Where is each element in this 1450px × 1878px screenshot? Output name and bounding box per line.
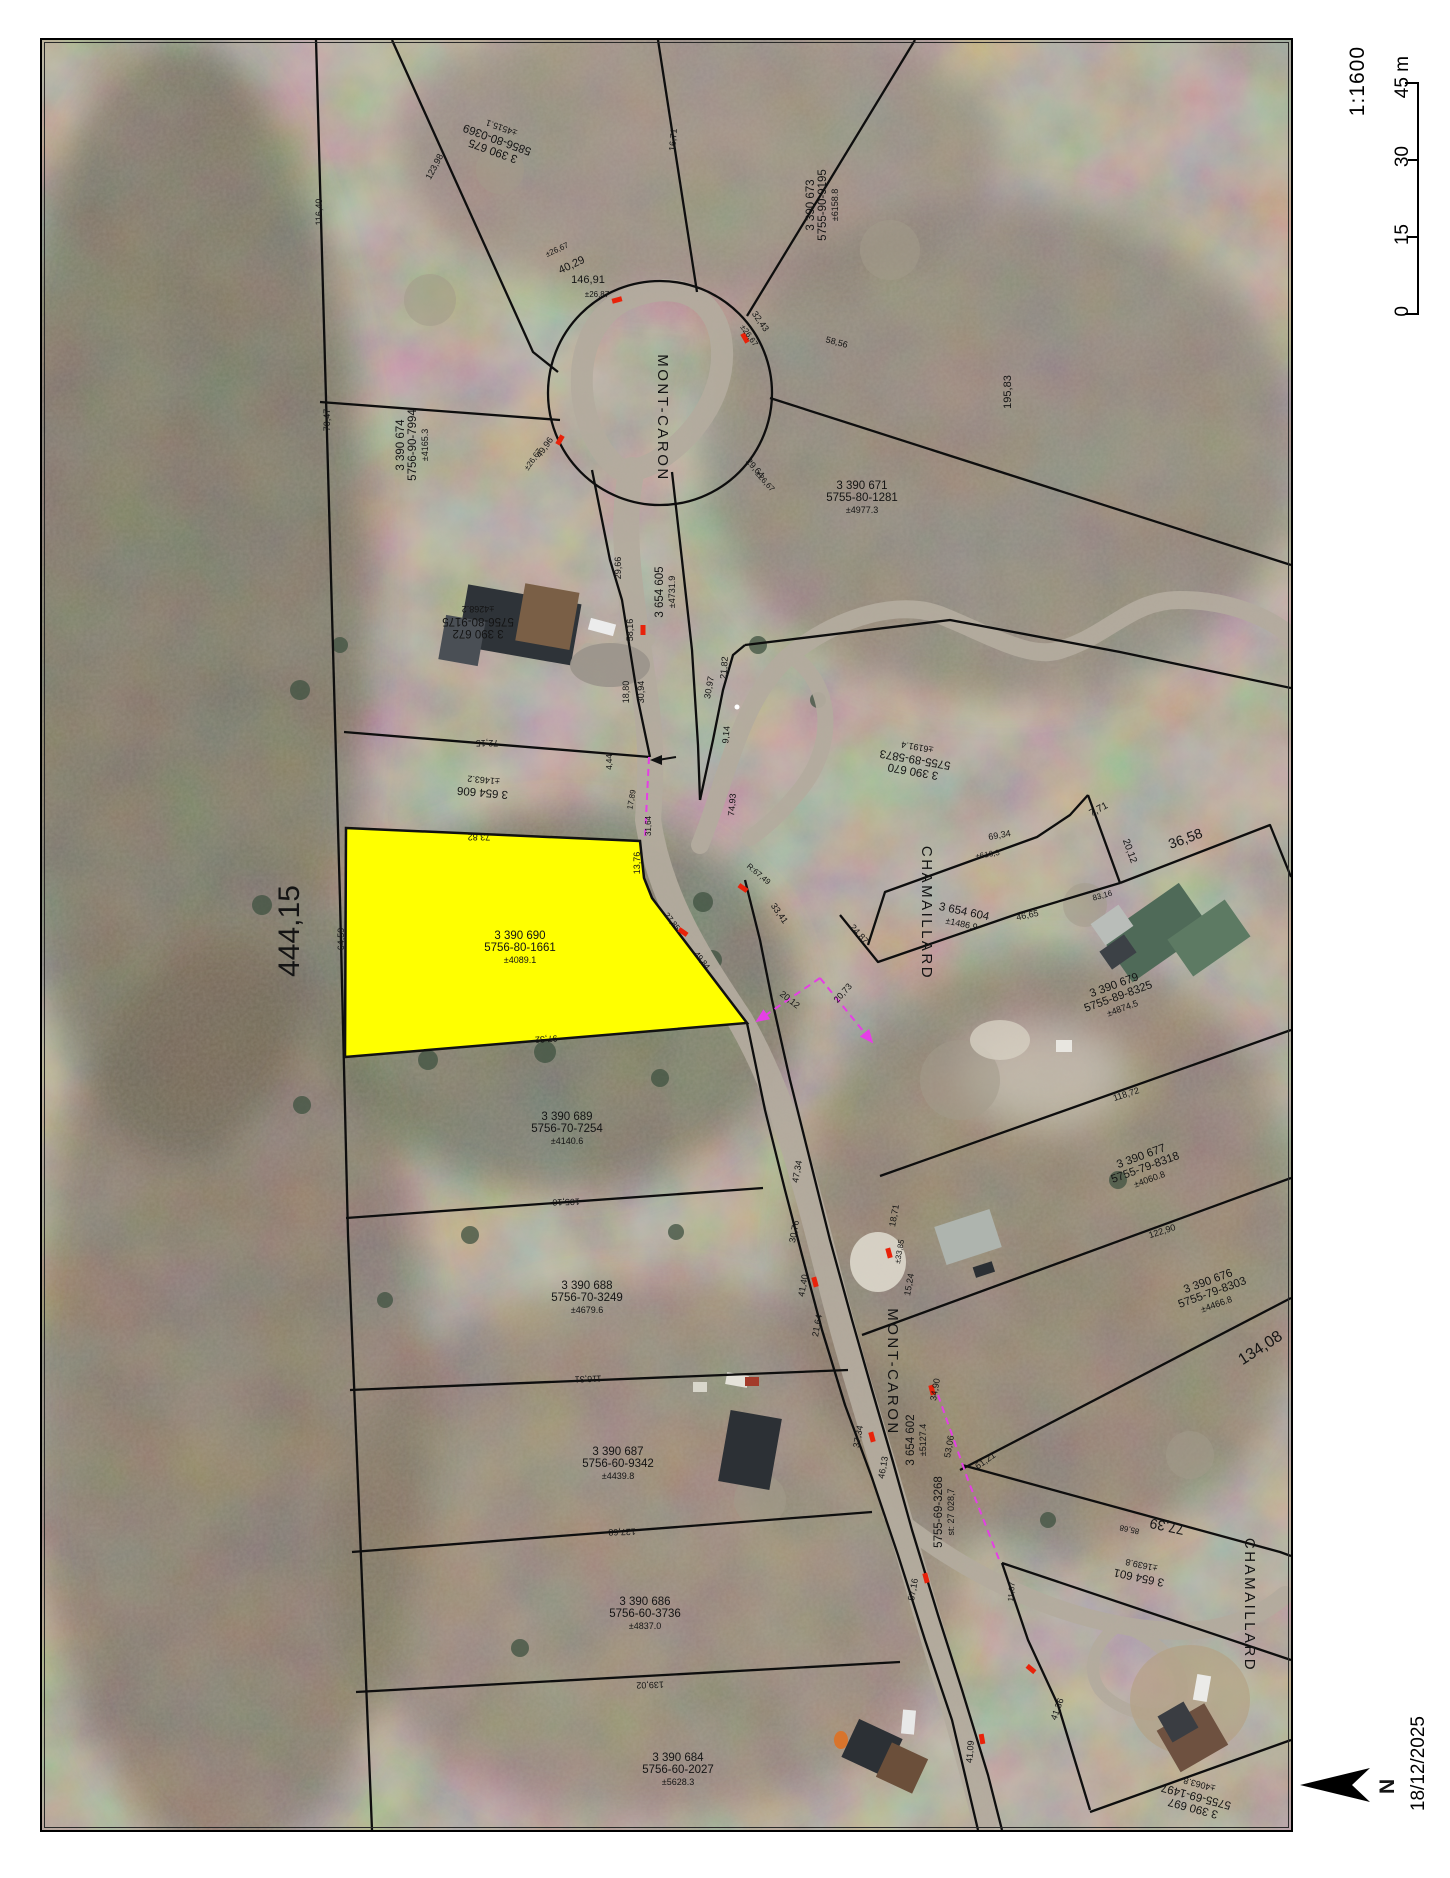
scale-tick-30: 30 <box>1392 146 1414 167</box>
parcel-label-line: ±4837.0 <box>629 1621 661 1631</box>
edge-length-label: 146,91 <box>571 274 605 286</box>
parcel-label-line: 3 390 673 <box>805 179 817 230</box>
edge-length-label: 13,76 <box>632 852 642 875</box>
north-arrow-icon <box>1300 1768 1370 1802</box>
edge-length-label: 16,71 <box>667 128 679 151</box>
north-label: N <box>1376 1779 1399 1794</box>
parcel-label-line: st: 27 028,7 <box>946 1488 956 1535</box>
scale-ruler <box>1417 82 1419 315</box>
parcel-label-line: 3 390 689 <box>541 1111 592 1123</box>
edge-length-label: 105,10 <box>552 1197 580 1208</box>
map-frame: 116,40123,9816,7170,47146,91±26,8740,29±… <box>40 38 1293 1832</box>
parcel-label-line: ±4731.9 <box>667 576 677 608</box>
edge-length-label: 9,14 <box>720 726 731 744</box>
edge-length-label: 127,68 <box>608 1527 636 1538</box>
parcel-label-line: 5756-60-3736 <box>609 1608 681 1620</box>
street-name-label: CHAMAILLARD <box>918 846 935 980</box>
parcel-label-line: 5756-60-2027 <box>642 1764 714 1776</box>
parcel-label-line: ±4165.3 <box>420 429 430 461</box>
edge-length-label: 31,64 <box>644 815 653 836</box>
street-name-label: CHAMAILLARD <box>1241 1538 1258 1672</box>
edge-length-label: 73,82 <box>468 832 491 842</box>
parcel-label-line: ±4089.1 <box>504 955 536 965</box>
north-arrow: N <box>1295 1763 1410 1811</box>
parcel-label-line: ±4140.6 <box>551 1136 583 1146</box>
parcel-label-line: 5755-80-1281 <box>826 492 898 504</box>
edge-length-label: 72,15 <box>476 738 499 748</box>
edge-length-label: 29,66 <box>613 557 623 580</box>
edge-length-label: 195,83 <box>1002 375 1014 409</box>
parcel-label-line: 3 390 688 <box>561 1280 612 1292</box>
parcel-label-line: 5756-80-9175 <box>442 615 514 627</box>
parcel-label-line: 3 390 690 <box>494 930 545 942</box>
parcel-label-line: 5756-70-7254 <box>531 1123 603 1135</box>
parcel-label-line: 5755-69-3268 <box>933 1476 945 1548</box>
parcel-label-line: 3 390 684 <box>652 1752 704 1764</box>
edge-length-label: 41,09 <box>964 1740 976 1763</box>
parcel-label-line: ±5127.4 <box>918 1424 928 1456</box>
parcel-label-line: 5756-70-3249 <box>551 1292 623 1304</box>
edge-length-label: 70,47 <box>322 409 332 432</box>
parcel-label-line: ±5628.3 <box>662 1777 694 1787</box>
edge-length-label: ±26,87 <box>585 290 610 299</box>
parcel-label-line: 5756-90-7994 <box>407 409 419 481</box>
scale-ratio: 1:1600 <box>1346 46 1370 116</box>
parcel-label-line: 5756-60-9342 <box>582 1458 654 1470</box>
scale-tick-45: 45 m <box>1392 56 1414 98</box>
parcel-label-line: ±4268.2 <box>462 604 494 614</box>
parcel-label-line: ±4439.8 <box>602 1471 634 1481</box>
parcel-label-line: 3 390 687 <box>592 1446 643 1458</box>
parcel-label-line: 5755-90-9195 <box>817 169 829 241</box>
parcel-label-line: 3 654 605 <box>654 566 666 617</box>
edge-length-label: 116,40 <box>314 199 324 226</box>
survey-marker-icon <box>641 625 646 635</box>
parcel-label-line: 5756-80-1661 <box>484 942 556 954</box>
edge-length-label: 64,59 <box>336 928 346 951</box>
edge-length-label: 21,82 <box>718 656 730 679</box>
parcel-label-line: 3 654 602 <box>905 1414 917 1465</box>
edge-length-label: 74,93 <box>726 793 738 816</box>
edge-length-label: 58,16 <box>625 619 635 642</box>
map-canvas[interactable]: 116,40123,9816,7170,47146,91±26,8740,29±… <box>42 40 1291 1830</box>
scale-tick-15: 15 <box>1392 224 1414 245</box>
edge-length-label: 30,94 <box>636 681 646 704</box>
parcel-label-line: 3 390 674 <box>395 419 407 471</box>
street-name-label: MONT-CARON <box>654 354 671 482</box>
edge-length-label: 4,44 <box>605 754 614 770</box>
parcel-label-line: ±4977.3 <box>846 505 878 515</box>
edge-length-label: 11,07 <box>1006 1581 1017 1602</box>
parcel-label-line: 3 390 686 <box>619 1596 670 1608</box>
parcel-label-line: ±6158.8 <box>830 189 840 221</box>
map-date: 18/12/2025 <box>1408 1716 1430 1811</box>
parcel-label-line: 3 390 671 <box>836 480 887 492</box>
edge-length-label: 139,02 <box>636 1680 664 1691</box>
edge-length-label: 18,80 <box>621 681 631 704</box>
parcel-label-line: ±4679.6 <box>571 1305 603 1315</box>
scale-tick-0: 0 <box>1392 306 1414 317</box>
edge-length-label: 444,15 <box>273 885 306 977</box>
parcel-label-line: 3 390 672 <box>452 627 503 639</box>
edge-length-label: 97,32 <box>535 1033 558 1045</box>
edge-length-label: 116,31 <box>575 1374 602 1385</box>
street-name-label: MONT-CARON <box>884 1308 901 1436</box>
